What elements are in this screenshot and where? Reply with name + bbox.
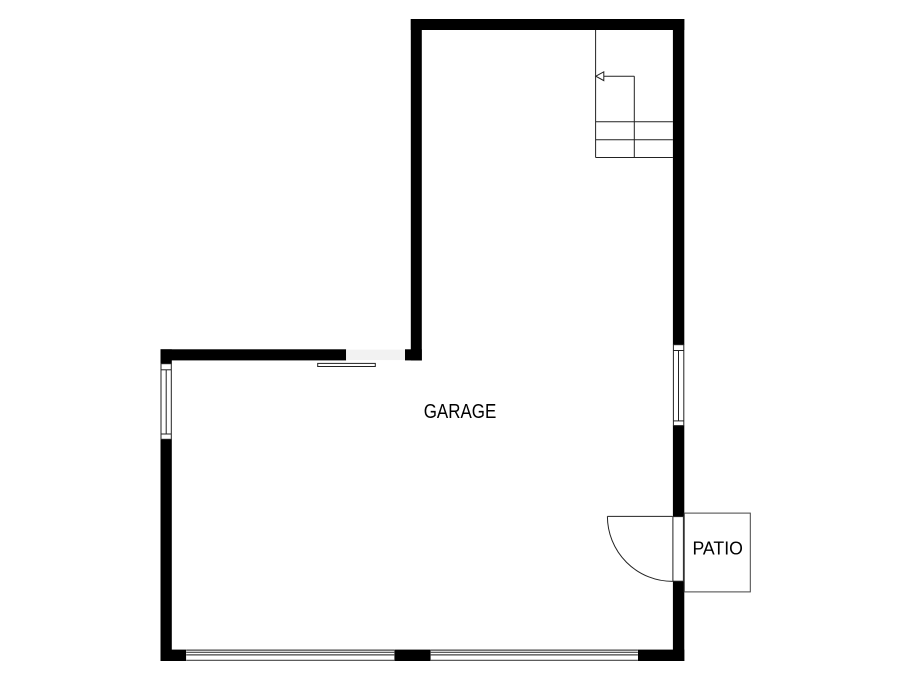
svg-text:PATIO: PATIO	[692, 538, 743, 558]
svg-text:GARAGE: GARAGE	[424, 401, 497, 423]
